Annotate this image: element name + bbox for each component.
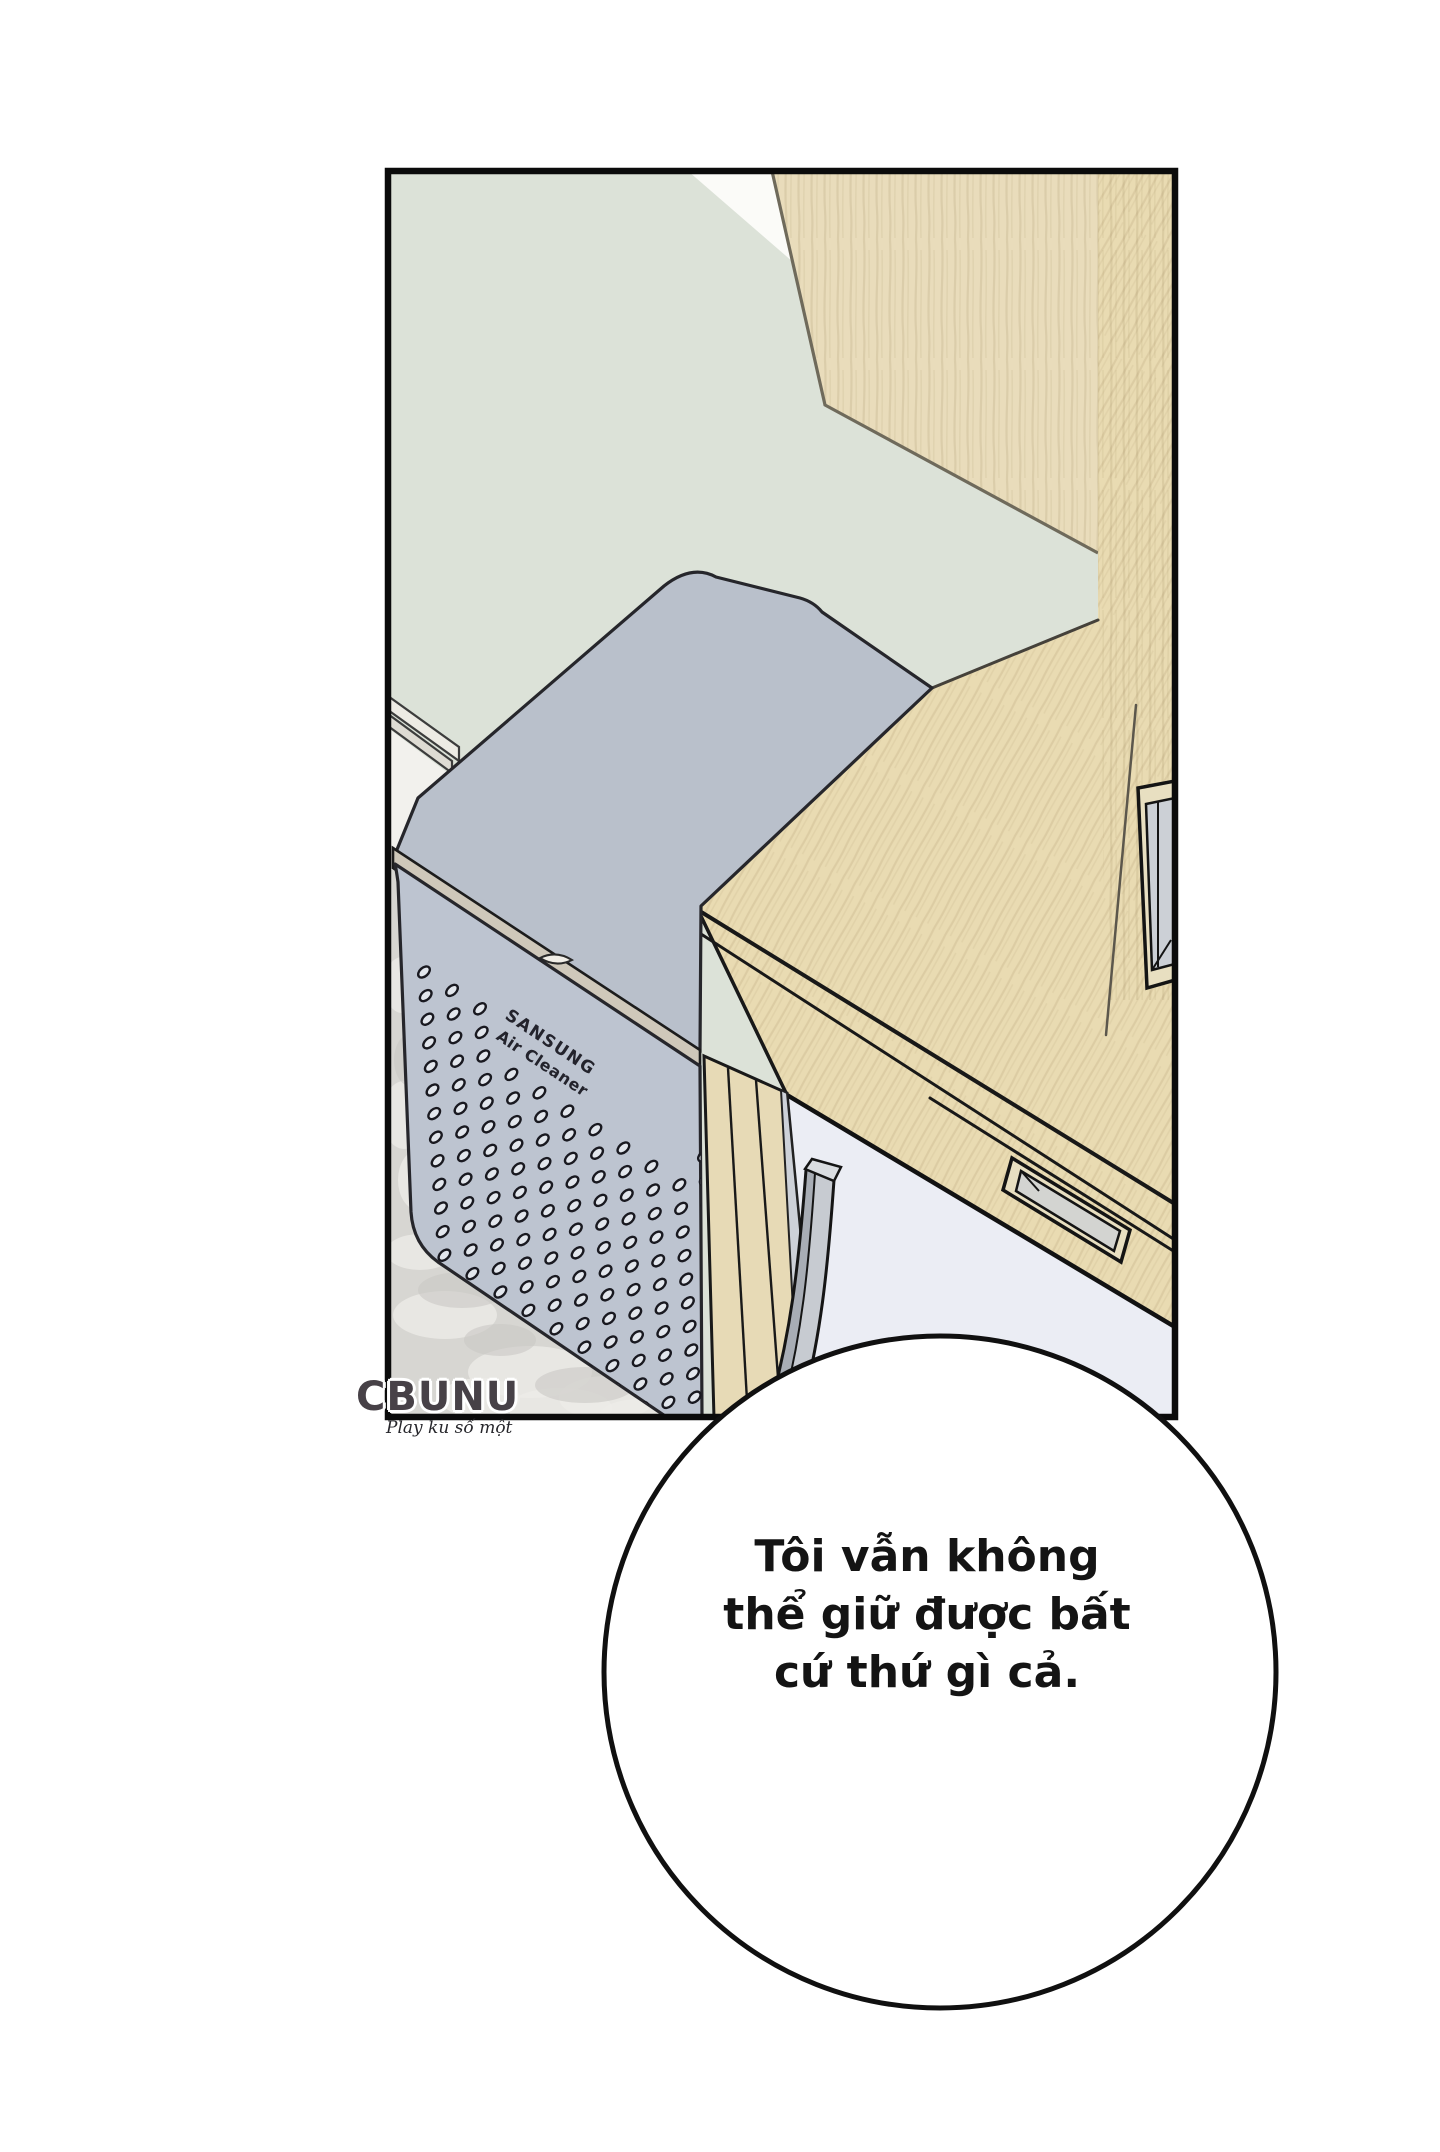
panel-scene: SANSUNG Air Cleaner xyxy=(0,0,1440,2152)
webtoon-page: SANSUNG Air Cleaner Tôi vẫn không thể gi… xyxy=(0,0,1440,2152)
watermark: CBUNU Play ku số một xyxy=(356,1374,616,1438)
watermark-tagline: Play ku số một xyxy=(386,1418,616,1438)
speech-bubble xyxy=(604,1336,1276,2008)
watermark-logo: CBUNU xyxy=(356,1374,616,1420)
